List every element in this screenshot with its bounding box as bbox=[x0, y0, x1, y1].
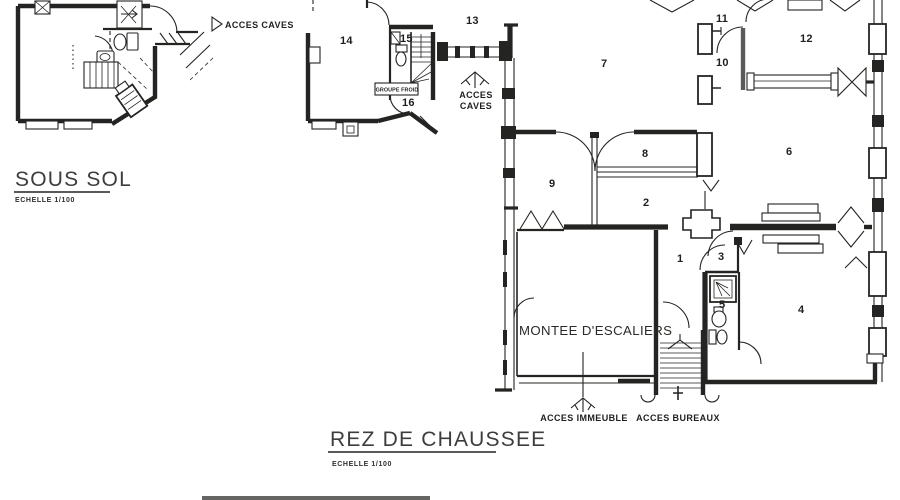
room-label-11: 11 bbox=[716, 13, 728, 25]
room-label-6: 6 bbox=[786, 146, 792, 158]
stair-direction-icon bbox=[117, 1, 142, 28]
sous-sol-scale-label: ECHELLE 1/100 bbox=[15, 197, 75, 204]
sous-sol-plan: ACCES CAVES SOUS SOL ECHELLE 1/100 bbox=[14, 1, 294, 204]
left-wing-stairs bbox=[411, 34, 433, 83]
scan-artifact-bar bbox=[202, 496, 430, 500]
vent-icon bbox=[35, 1, 50, 14]
rdc-main-wing: MONTEE D'ESCALIERS ACCES IMMEUBLE ACCES … bbox=[340, 0, 886, 423]
acces-caves-label-line1: ACCES bbox=[459, 90, 493, 100]
room6-room4-divider bbox=[708, 204, 872, 256]
montee-escaliers-room: MONTEE D'ESCALIERS bbox=[517, 230, 672, 397]
room-label-15: 15 bbox=[400, 33, 413, 45]
basement-stairs bbox=[84, 62, 118, 88]
room-label-10: 10 bbox=[716, 57, 729, 69]
rdc-left-wing: GROUPE FROID bbox=[308, 0, 437, 136]
groupe-froid-label: GROUPE FROID bbox=[376, 88, 419, 94]
room-label-1: 1 bbox=[677, 253, 683, 265]
sous-sol-acces-caves-label: ACCES CAVES bbox=[225, 20, 294, 30]
electric-panel-icon bbox=[391, 32, 400, 44]
rdc-link-corridor: ACCES CAVES bbox=[437, 41, 512, 111]
room-label-5: 5 bbox=[719, 299, 725, 311]
montee-escaliers-label: MONTEE D'ESCALIERS bbox=[519, 323, 672, 338]
acces-immeuble-label: ACCES IMMEUBLE bbox=[540, 413, 628, 423]
room-label-14: 14 bbox=[340, 35, 353, 47]
floor-plan-sheet: ACCES CAVES SOUS SOL ECHELLE 1/100 bbox=[0, 0, 900, 500]
wc-icon bbox=[114, 33, 138, 50]
room-label-2: 2 bbox=[643, 197, 649, 209]
acces-bureaux-label: ACCES BUREAUX bbox=[636, 413, 720, 423]
room-label-3: 3 bbox=[718, 251, 724, 263]
room-label-7: 7 bbox=[601, 58, 607, 70]
chimney-icon bbox=[343, 122, 358, 136]
sous-sol-title: SOUS SOL bbox=[15, 168, 132, 191]
room-label-9: 9 bbox=[549, 178, 555, 190]
wc-icon bbox=[396, 45, 407, 66]
room-label-13: 13 bbox=[466, 15, 479, 27]
room-label-4: 4 bbox=[798, 304, 805, 316]
acces-caves-label-line2: CAVES bbox=[460, 101, 492, 111]
acces-caves-arrow-icon bbox=[212, 17, 222, 31]
wc-icon bbox=[709, 330, 727, 344]
acces-caves-tree-icon bbox=[461, 72, 489, 88]
rdc-title-block: REZ DE CHAUSSEE ECHELLE 1/100 bbox=[328, 428, 546, 468]
floor-plan-drawing: ACCES CAVES SOUS SOL ECHELLE 1/100 bbox=[0, 0, 900, 500]
rdc-scale-label: ECHELLE 1/100 bbox=[332, 461, 392, 468]
bathroom bbox=[705, 272, 761, 383]
acces-immeuble-tree-icon bbox=[571, 398, 595, 412]
room-label-12: 12 bbox=[800, 33, 813, 45]
rdc-title: REZ DE CHAUSSEE bbox=[330, 428, 546, 451]
room-label-8: 8 bbox=[642, 148, 648, 160]
room-label-16: 16 bbox=[402, 97, 415, 109]
